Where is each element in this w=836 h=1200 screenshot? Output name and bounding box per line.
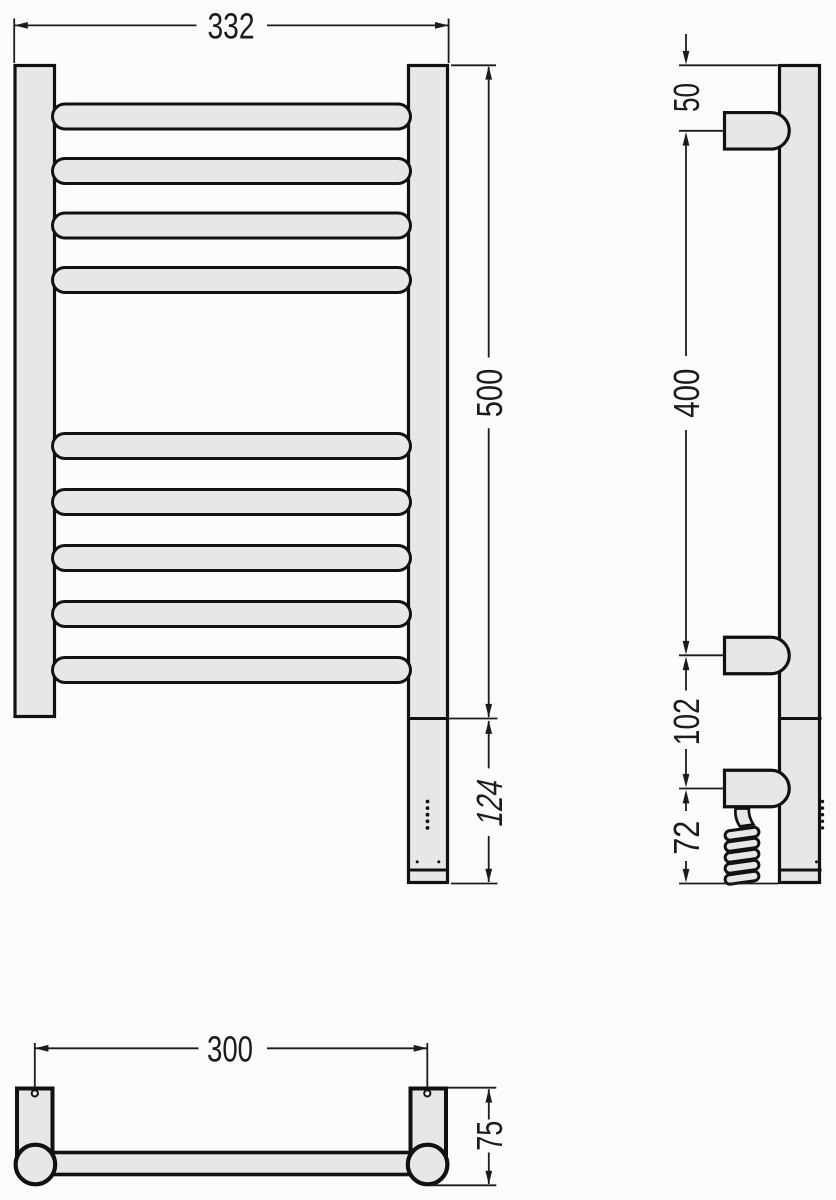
svg-text:72: 72 <box>666 821 707 855</box>
svg-text:300: 300 <box>207 1029 253 1070</box>
svg-text:400: 400 <box>666 369 707 418</box>
svg-text:500: 500 <box>469 369 510 418</box>
svg-text:124: 124 <box>469 774 509 829</box>
svg-text:75: 75 <box>469 1121 510 1151</box>
svg-text:102: 102 <box>666 698 707 745</box>
svg-text:332: 332 <box>208 6 255 47</box>
svg-text:50: 50 <box>666 83 707 112</box>
